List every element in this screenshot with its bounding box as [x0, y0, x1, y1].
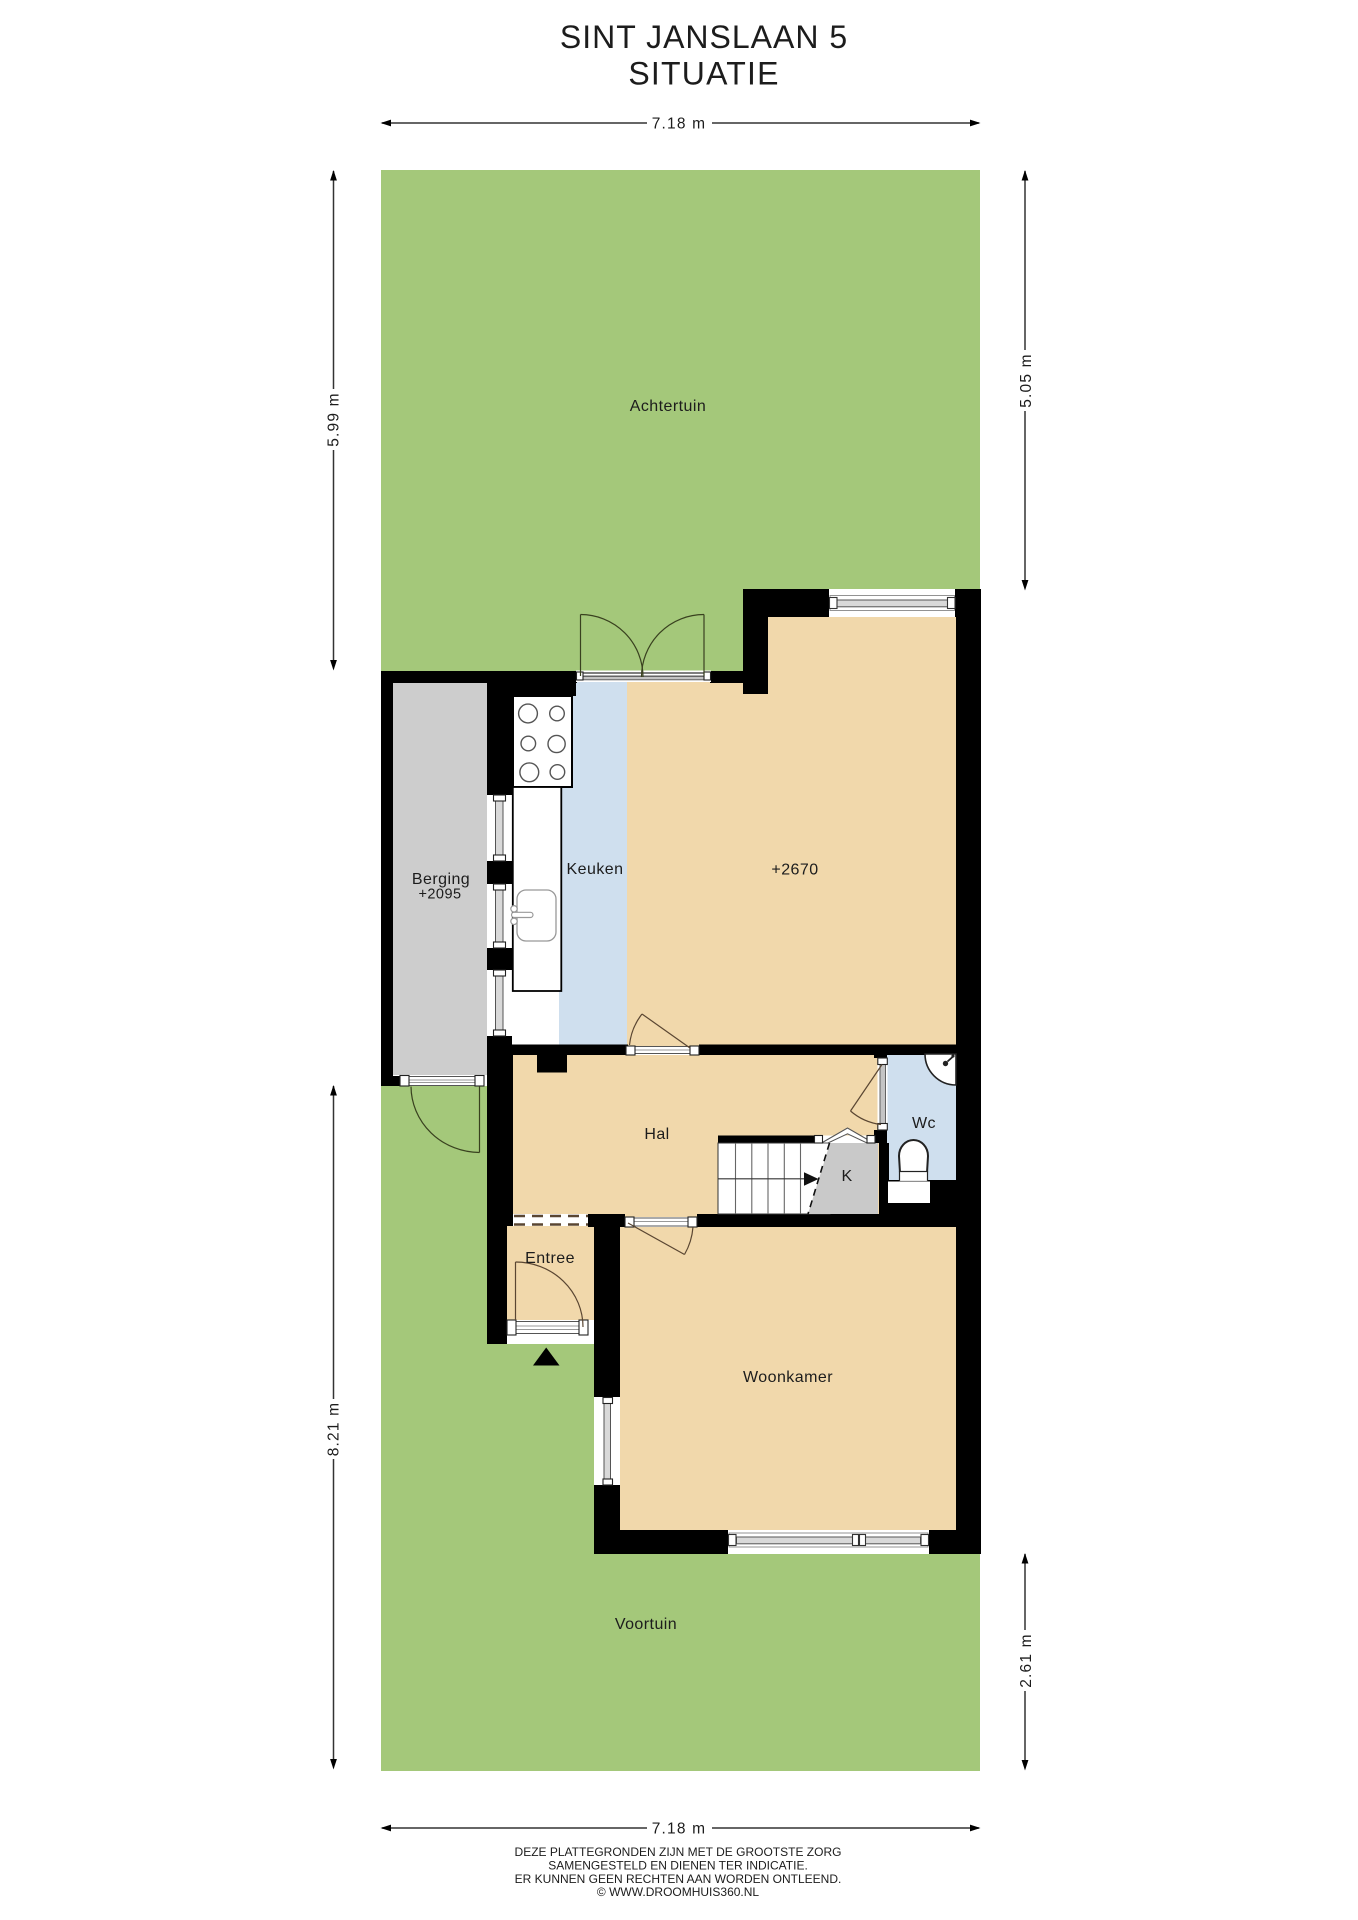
- svg-text:2.61 m: 2.61 m: [1018, 1633, 1035, 1688]
- svg-text:K: K: [841, 1168, 852, 1185]
- svg-text:Voortuin: Voortuin: [615, 1616, 677, 1633]
- svg-text:Berging: Berging: [412, 871, 470, 888]
- svg-text:© WWW.DROOMHUIS360.NL: © WWW.DROOMHUIS360.NL: [597, 1885, 760, 1899]
- svg-text:ER KUNNEN GEEN RECHTEN AAN WOR: ER KUNNEN GEEN RECHTEN AAN WORDEN ONTLEE…: [515, 1872, 842, 1886]
- svg-text:Wc: Wc: [912, 1115, 936, 1132]
- svg-text:5.99 m: 5.99 m: [326, 392, 343, 447]
- svg-text:5.05 m: 5.05 m: [1018, 353, 1035, 408]
- svg-text:7.18 m: 7.18 m: [652, 1821, 707, 1838]
- svg-text:Entree: Entree: [525, 1250, 575, 1267]
- svg-text:DEZE PLATTEGRONDEN ZIJN MET DE: DEZE PLATTEGRONDEN ZIJN MET DE GROOTSTE …: [515, 1845, 842, 1859]
- svg-text:8.21 m: 8.21 m: [326, 1402, 343, 1457]
- svg-text:+2095: +2095: [419, 887, 462, 903]
- svg-text:Hal: Hal: [644, 1126, 669, 1143]
- svg-text:Keuken: Keuken: [567, 861, 624, 878]
- svg-text:+2670: +2670: [771, 861, 818, 878]
- svg-text:Achtertuin: Achtertuin: [630, 398, 707, 415]
- svg-text:SAMENGESTELD EN DIENEN TER IND: SAMENGESTELD EN DIENEN TER INDICATIE.: [548, 1859, 808, 1873]
- svg-text:7.18 m: 7.18 m: [652, 116, 707, 133]
- svg-text:Woonkamer: Woonkamer: [743, 1369, 833, 1386]
- svg-text:SINT JANSLAAN 5: SINT JANSLAAN 5: [560, 19, 848, 55]
- svg-text:SITUATIE: SITUATIE: [628, 56, 779, 92]
